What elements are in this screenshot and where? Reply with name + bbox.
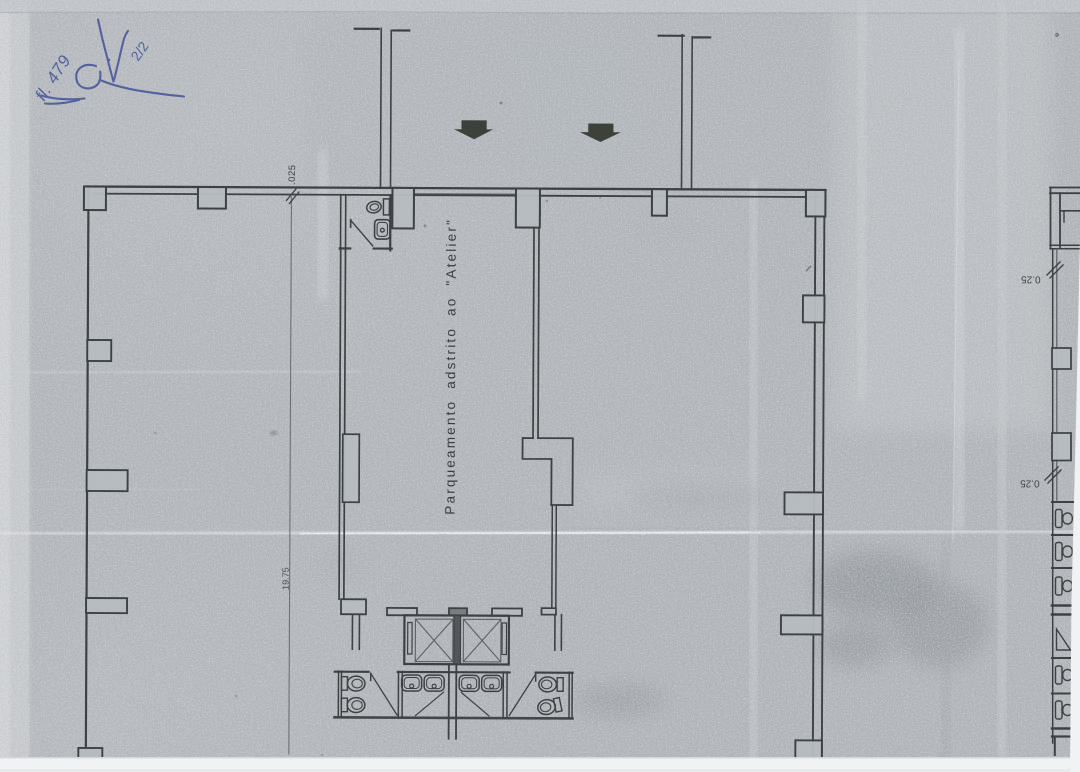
svg-text:0.25: 0.25	[1021, 273, 1041, 284]
svg-text:.025: .025	[287, 164, 298, 185]
svg-text:0.25: 0.25	[1020, 477, 1040, 488]
svg-text:19.75: 19.75	[281, 567, 291, 590]
svg-text:Parqueamento adstrito ao "Atel: Parqueamento adstrito ao "Atelier"	[442, 218, 458, 515]
